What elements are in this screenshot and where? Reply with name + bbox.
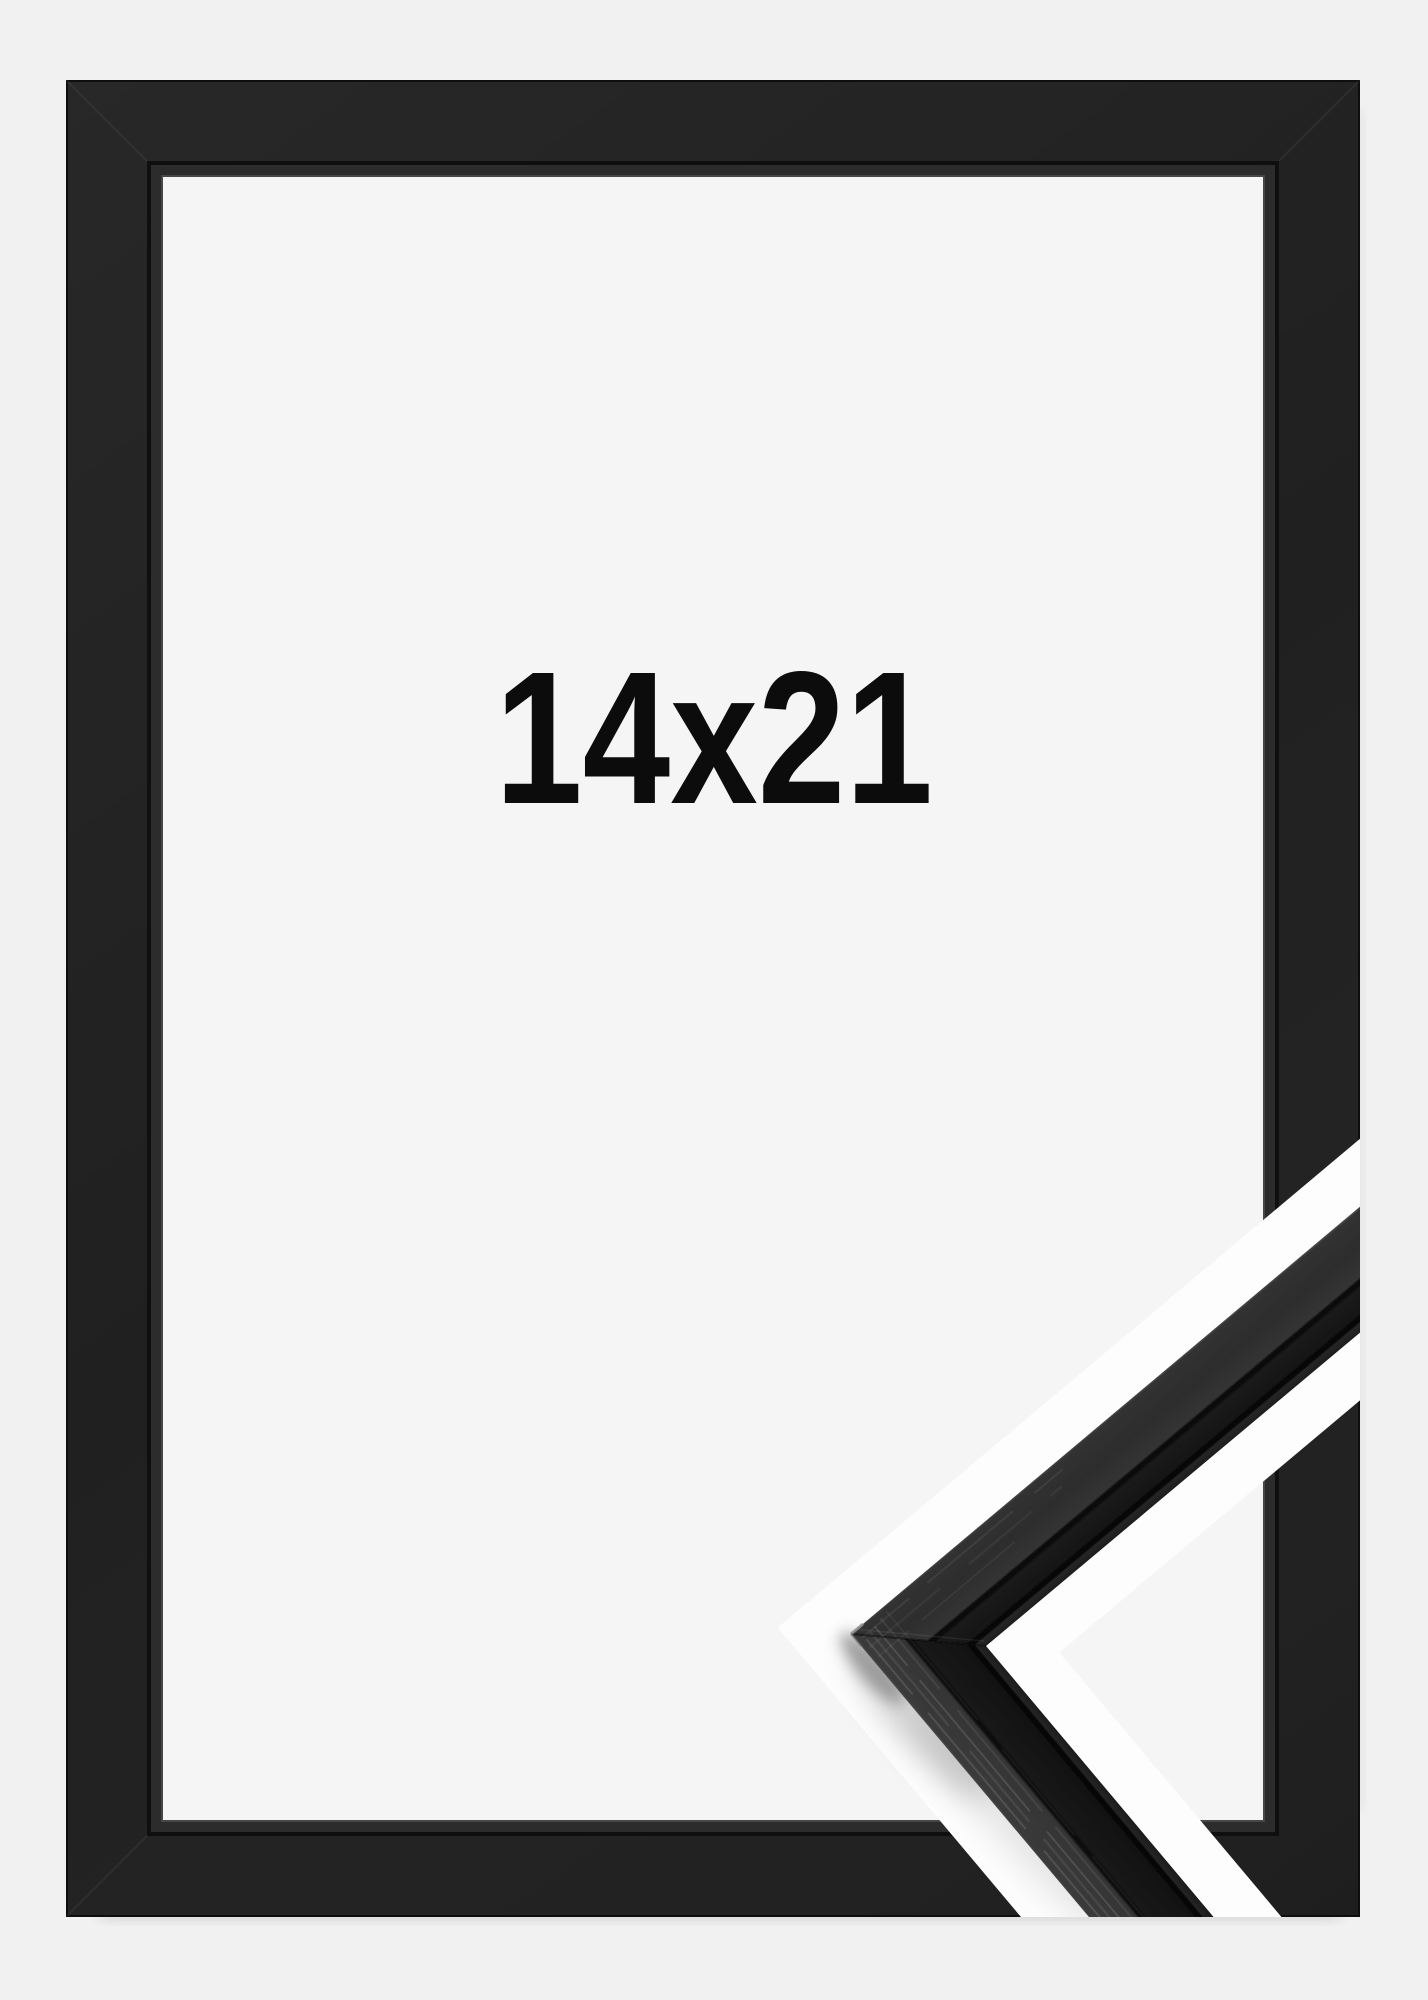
size-label: 14x21 <box>495 633 933 844</box>
product-photo-frame-14x21: 14x21 <box>0 0 1428 2000</box>
